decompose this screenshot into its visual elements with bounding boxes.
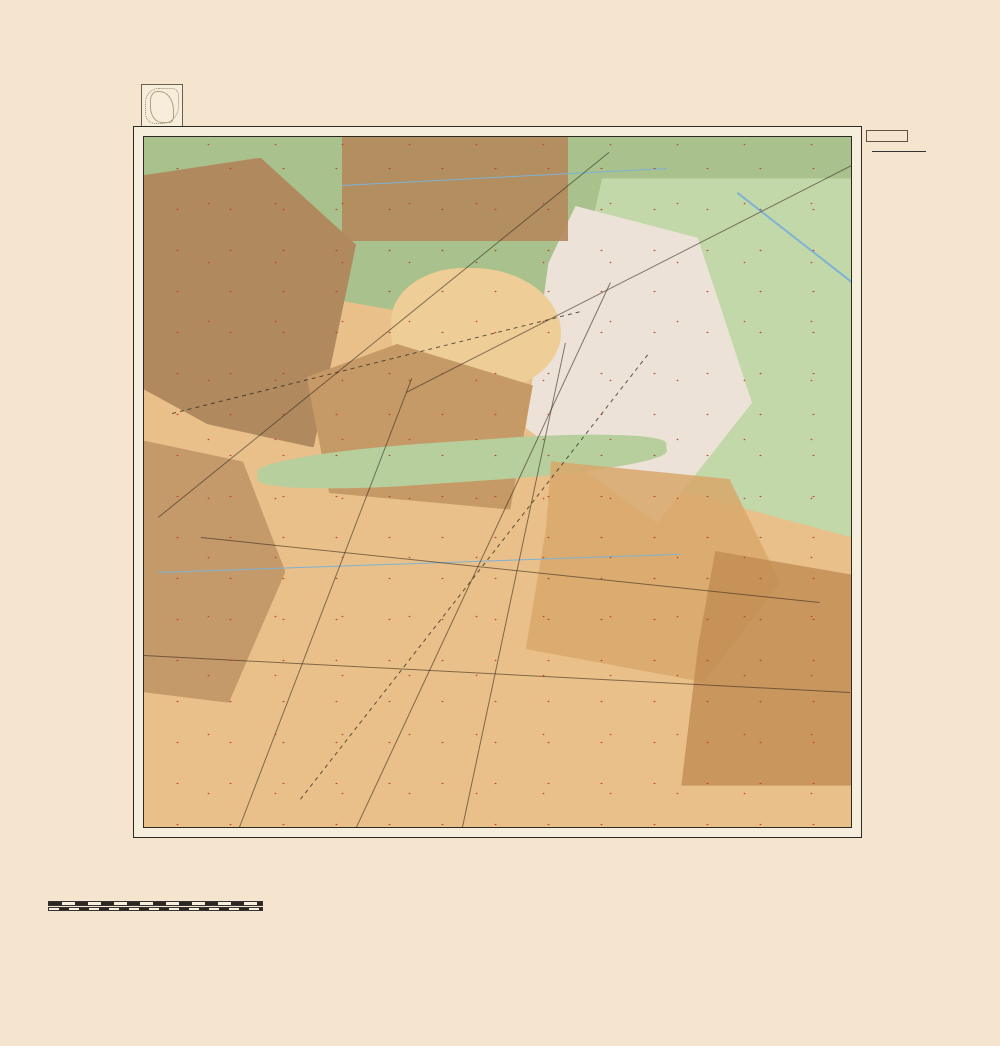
section-line-row bbox=[866, 146, 994, 152]
cross-section-cde bbox=[0, 938, 1000, 1046]
filled-ground-swatch bbox=[866, 130, 908, 142]
legend-right bbox=[866, 126, 994, 324]
graticule-left bbox=[134, 136, 143, 828]
scalebar-bar-bottom bbox=[48, 907, 263, 911]
section-line-glyph bbox=[872, 151, 926, 152]
index-map-thumbnail bbox=[141, 84, 183, 128]
graticule-top bbox=[143, 127, 852, 136]
header bbox=[0, 24, 1000, 33]
thickness-column bbox=[866, 164, 994, 324]
map-canvas bbox=[143, 136, 852, 828]
map-sheet bbox=[0, 0, 1000, 1046]
index-map bbox=[141, 82, 271, 128]
graticule-right bbox=[852, 136, 861, 828]
scalebar-bar-top bbox=[48, 901, 263, 906]
filled-ground-row bbox=[866, 130, 994, 142]
graticule-bottom bbox=[143, 828, 852, 837]
index-map-legend bbox=[187, 82, 271, 83]
length-scalebar bbox=[48, 898, 263, 911]
cross-section-ab bbox=[0, 838, 1000, 938]
map-frame bbox=[133, 126, 862, 838]
borehole-dots-overlay bbox=[144, 137, 851, 827]
